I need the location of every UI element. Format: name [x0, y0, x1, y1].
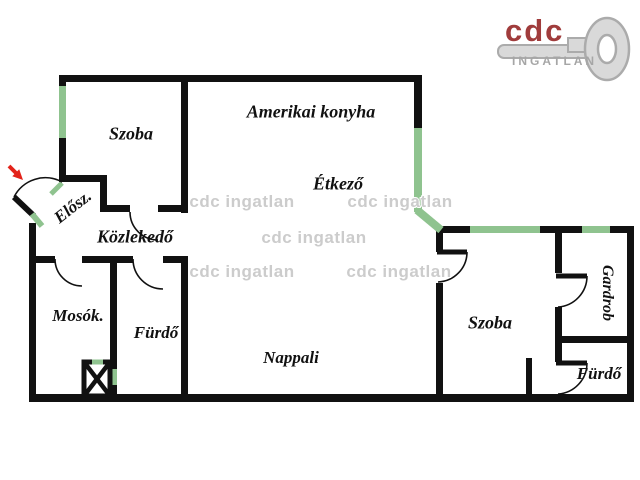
- room-label-gardrob: Gardrob: [598, 265, 616, 321]
- mosok-door-arc: [55, 259, 82, 286]
- room-label-furdo-left: Fürdő: [134, 323, 178, 343]
- logo-subtitle-text: INGATLAN: [512, 54, 597, 68]
- door-leaves: [437, 252, 587, 363]
- floorplan-image: Szoba Amerikai konyha Étkező Elősz. Közl…: [0, 0, 640, 480]
- room-label-szoba-right: Szoba: [468, 313, 512, 334]
- room-label-furdo-right: Fürdő: [577, 364, 621, 384]
- furdo-left-door-arc: [133, 259, 163, 289]
- room-label-mosok: Mosók.: [52, 306, 103, 326]
- watermark-text: cdc ingatlan: [261, 228, 366, 248]
- entry-diagonal-wall: [14, 197, 34, 216]
- room-label-amerikai-konyha: Amerikai konyha: [247, 102, 376, 123]
- watermark-text: cdc ingatlan: [189, 262, 294, 282]
- room-label-kozlekedo: Közlekedő: [97, 227, 173, 248]
- watermark-text: cdc ingatlan: [346, 262, 451, 282]
- room-label-nappali: Nappali: [263, 348, 319, 368]
- room-label-szoba-topleft: Szoba: [109, 124, 153, 145]
- watermark-text: cdc ingatlan: [347, 192, 452, 212]
- logo-brand-text: cdc: [505, 13, 564, 49]
- shaft-symbol: [84, 362, 110, 396]
- gardrob-door-arc: [558, 276, 587, 307]
- agency-logo: cdc INGATLAN: [480, 5, 640, 90]
- entrance-arrow-icon: [9, 166, 23, 180]
- watermark-text: cdc ingatlan: [189, 192, 294, 212]
